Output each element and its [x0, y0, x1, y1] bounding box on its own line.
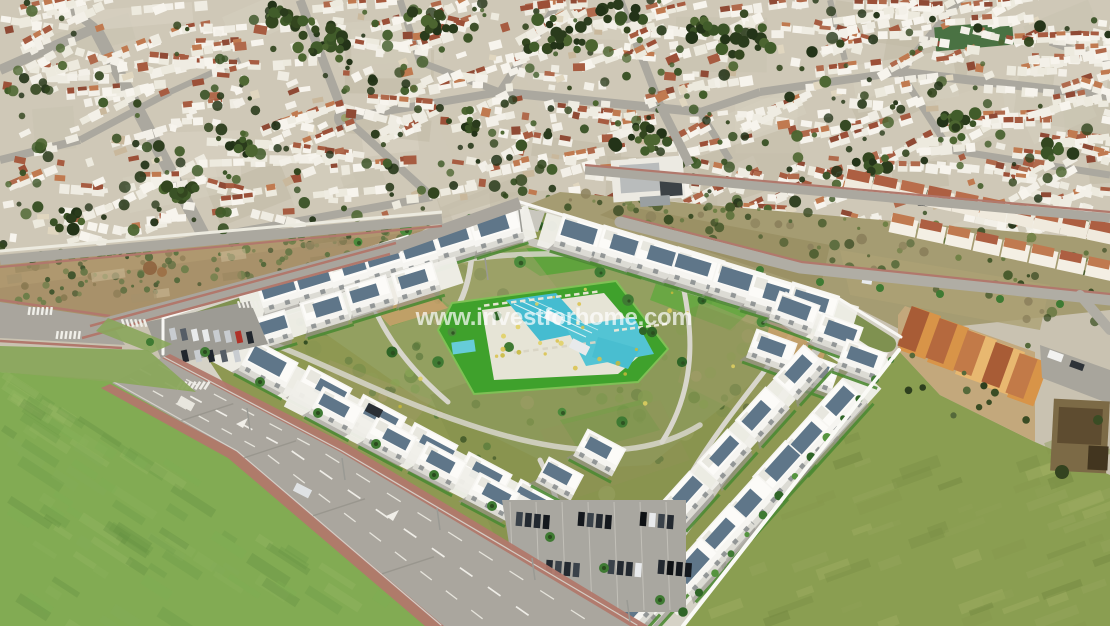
- svg-text:www.investforhome.com: www.investforhome.com: [415, 304, 693, 331]
